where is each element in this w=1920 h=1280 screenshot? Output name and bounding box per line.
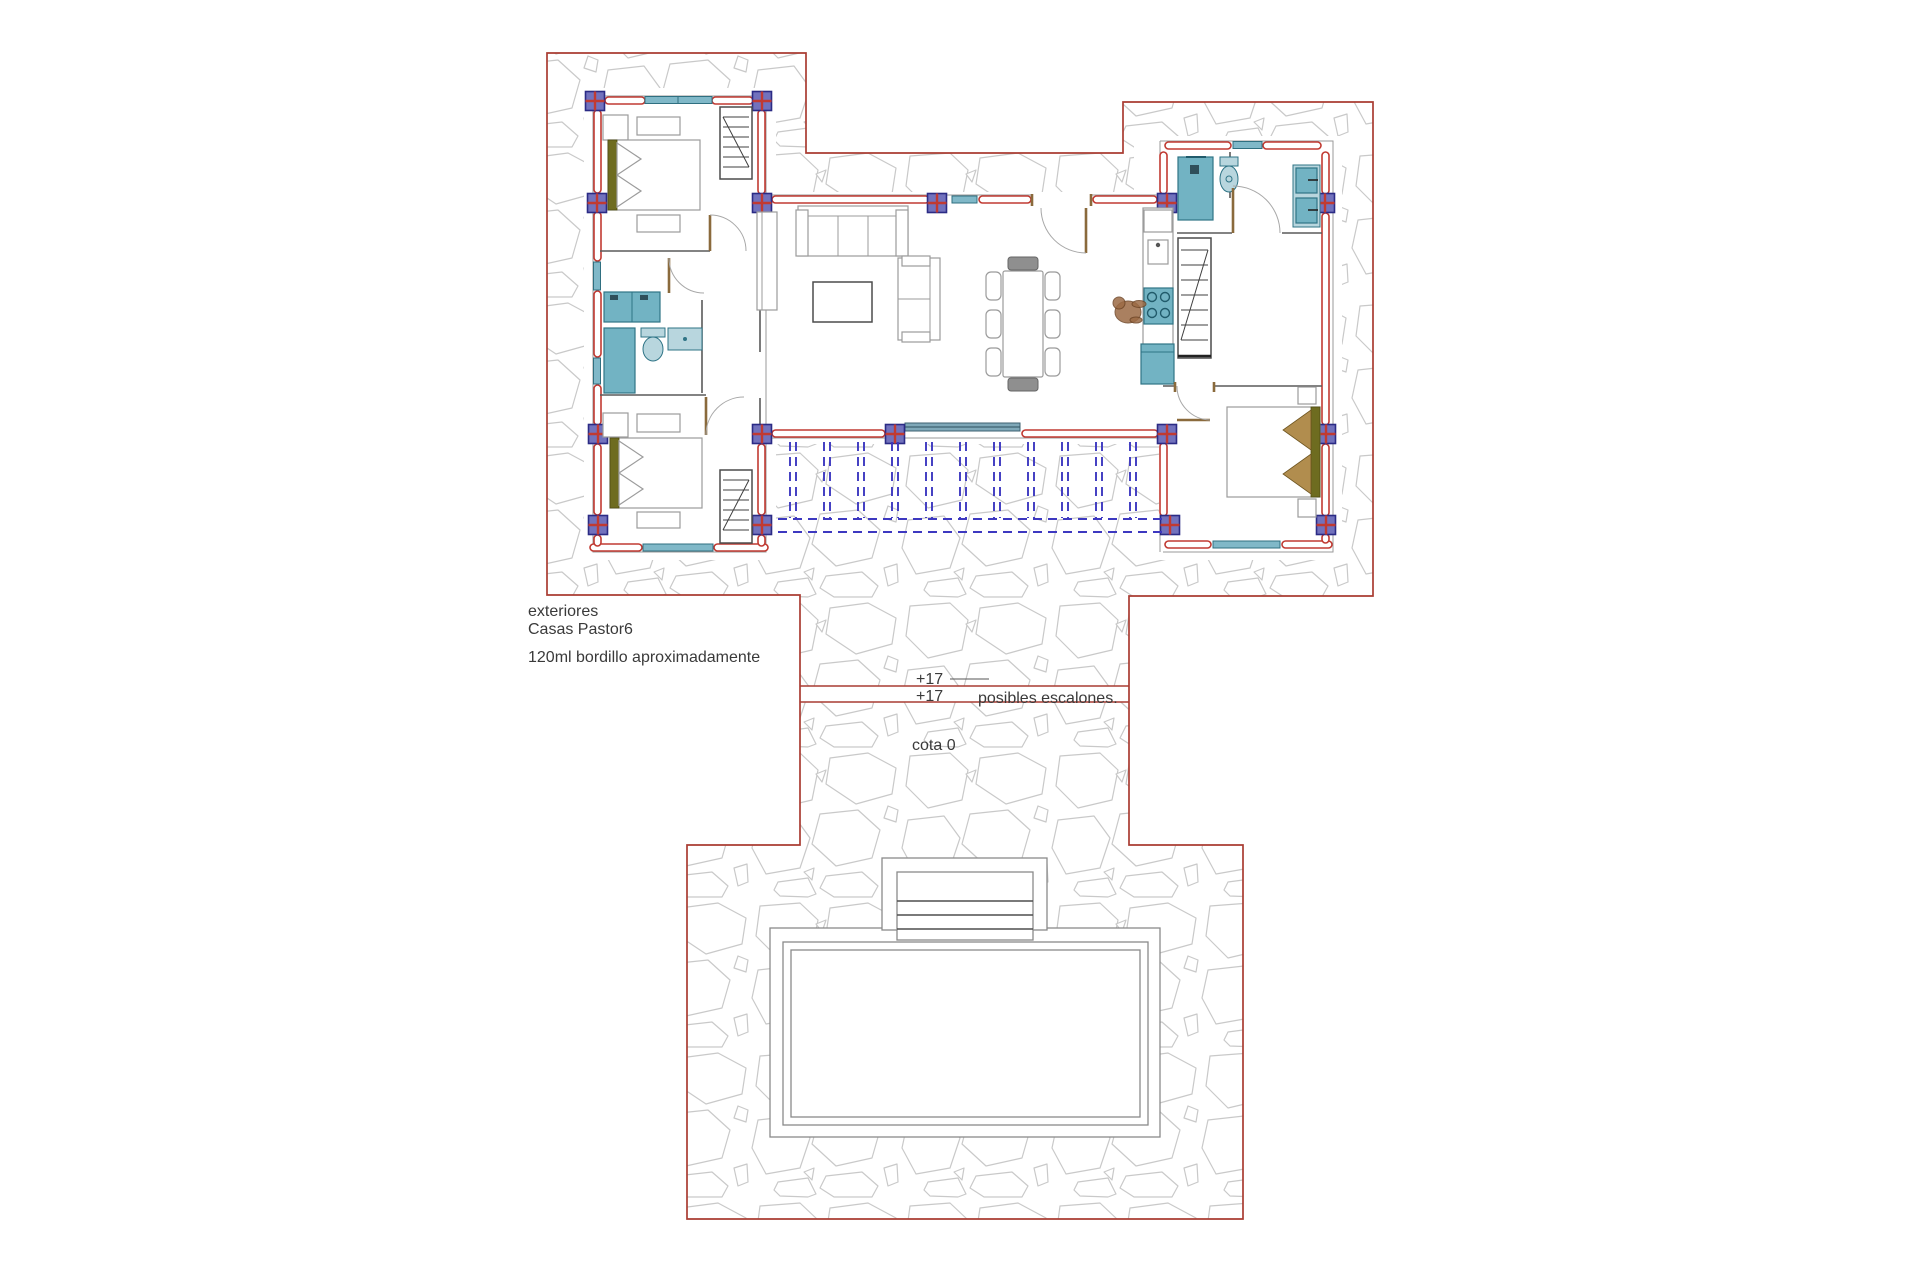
label-project-name: Casas Pastor6 (528, 621, 633, 638)
label-steps-note: posibles escalones. (978, 690, 1118, 707)
label-curb-note: 120ml bordillo aproximadamente (528, 649, 760, 666)
label-level-upper-b: +17 (916, 688, 943, 705)
label-level-upper-a: +17 (916, 671, 943, 688)
person-figure (1113, 297, 1146, 323)
label-exteriores: exteriores (528, 603, 598, 620)
site-plan-drawing: exteriores Casas Pastor6 120ml bordillo … (0, 0, 1920, 1280)
floor-plan-page: exteriores Casas Pastor6 120ml bordillo … (0, 0, 1920, 1280)
label-level-zero: cota 0 (912, 737, 956, 754)
pool-steps (882, 858, 1047, 940)
